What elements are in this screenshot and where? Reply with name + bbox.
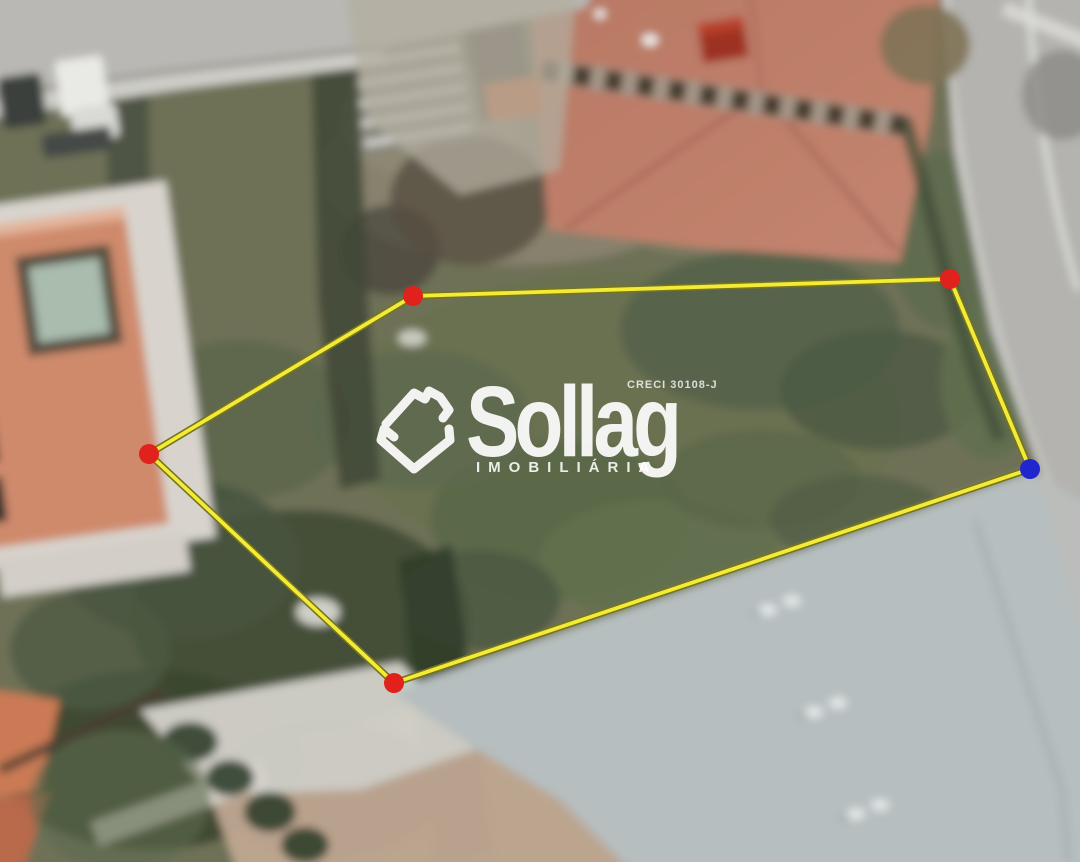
vertex-markers bbox=[139, 269, 1040, 693]
lot-boundary-outline bbox=[149, 279, 1030, 683]
vertex-marker-red-top-left bbox=[403, 286, 423, 306]
lot-boundary-line bbox=[149, 279, 1030, 683]
vertex-marker-blue-right bbox=[1020, 459, 1040, 479]
lot-boundary-overlay bbox=[0, 0, 1080, 862]
satellite-photo: Sollag IMOBILIÁRIA CRECI 30108-J bbox=[0, 0, 1080, 862]
vertex-marker-red-top-right bbox=[940, 269, 960, 289]
vertex-marker-red-bottom bbox=[384, 673, 404, 693]
vertex-marker-red-left bbox=[139, 444, 159, 464]
